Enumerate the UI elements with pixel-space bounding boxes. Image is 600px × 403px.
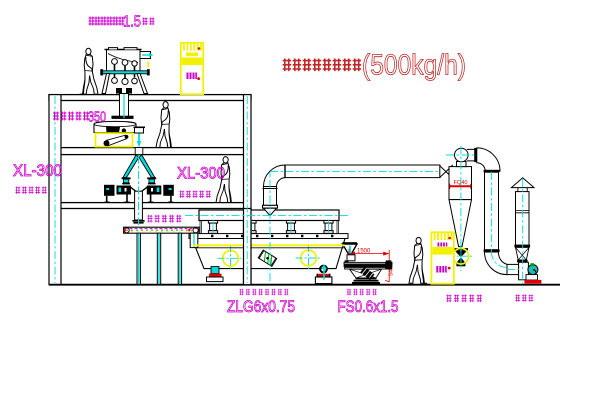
svg-text:XL-300: XL-300 [177,164,225,183]
svg-text:1.5: 1.5 [123,14,141,31]
svg-text:XL-300: XL-300 [13,161,62,180]
svg-text:350: 350 [88,109,106,126]
svg-text:FS0.6x1.5: FS0.6x1.5 [338,298,399,316]
svg-text:1500: 1500 [357,249,371,255]
svg-text:ZLG6x0.75: ZLG6x0.75 [227,298,295,316]
svg-text:(500kg/h): (500kg/h) [362,50,466,82]
